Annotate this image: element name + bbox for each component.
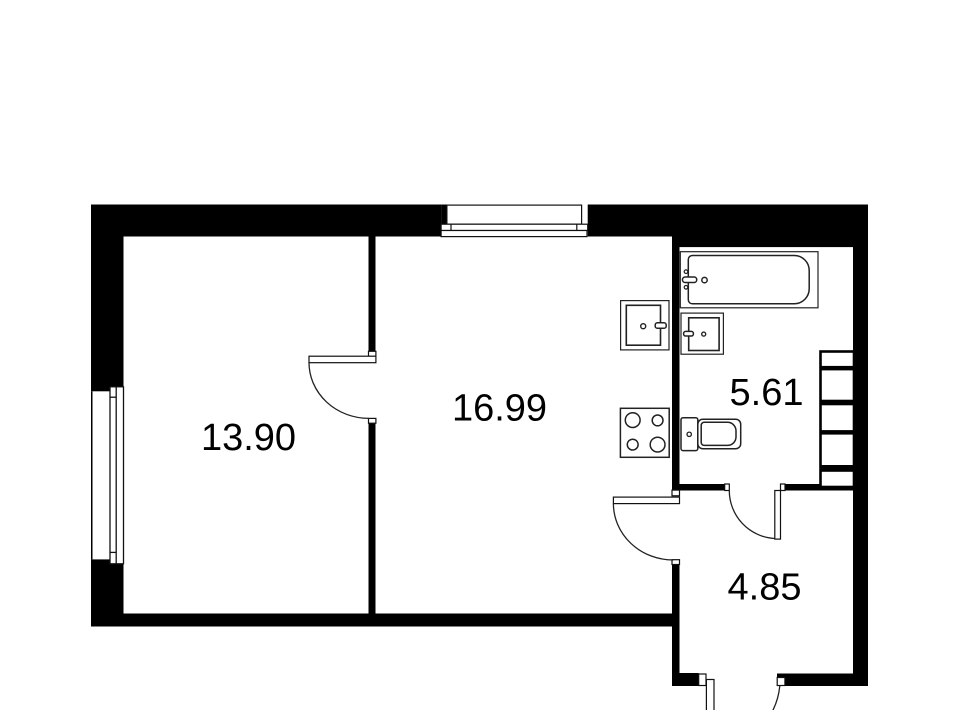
svg-text:4.85: 4.85 [728, 567, 802, 609]
svg-text:5.61: 5.61 [730, 372, 804, 414]
svg-text:16.99: 16.99 [452, 388, 547, 430]
svg-text:13.90: 13.90 [201, 417, 296, 459]
